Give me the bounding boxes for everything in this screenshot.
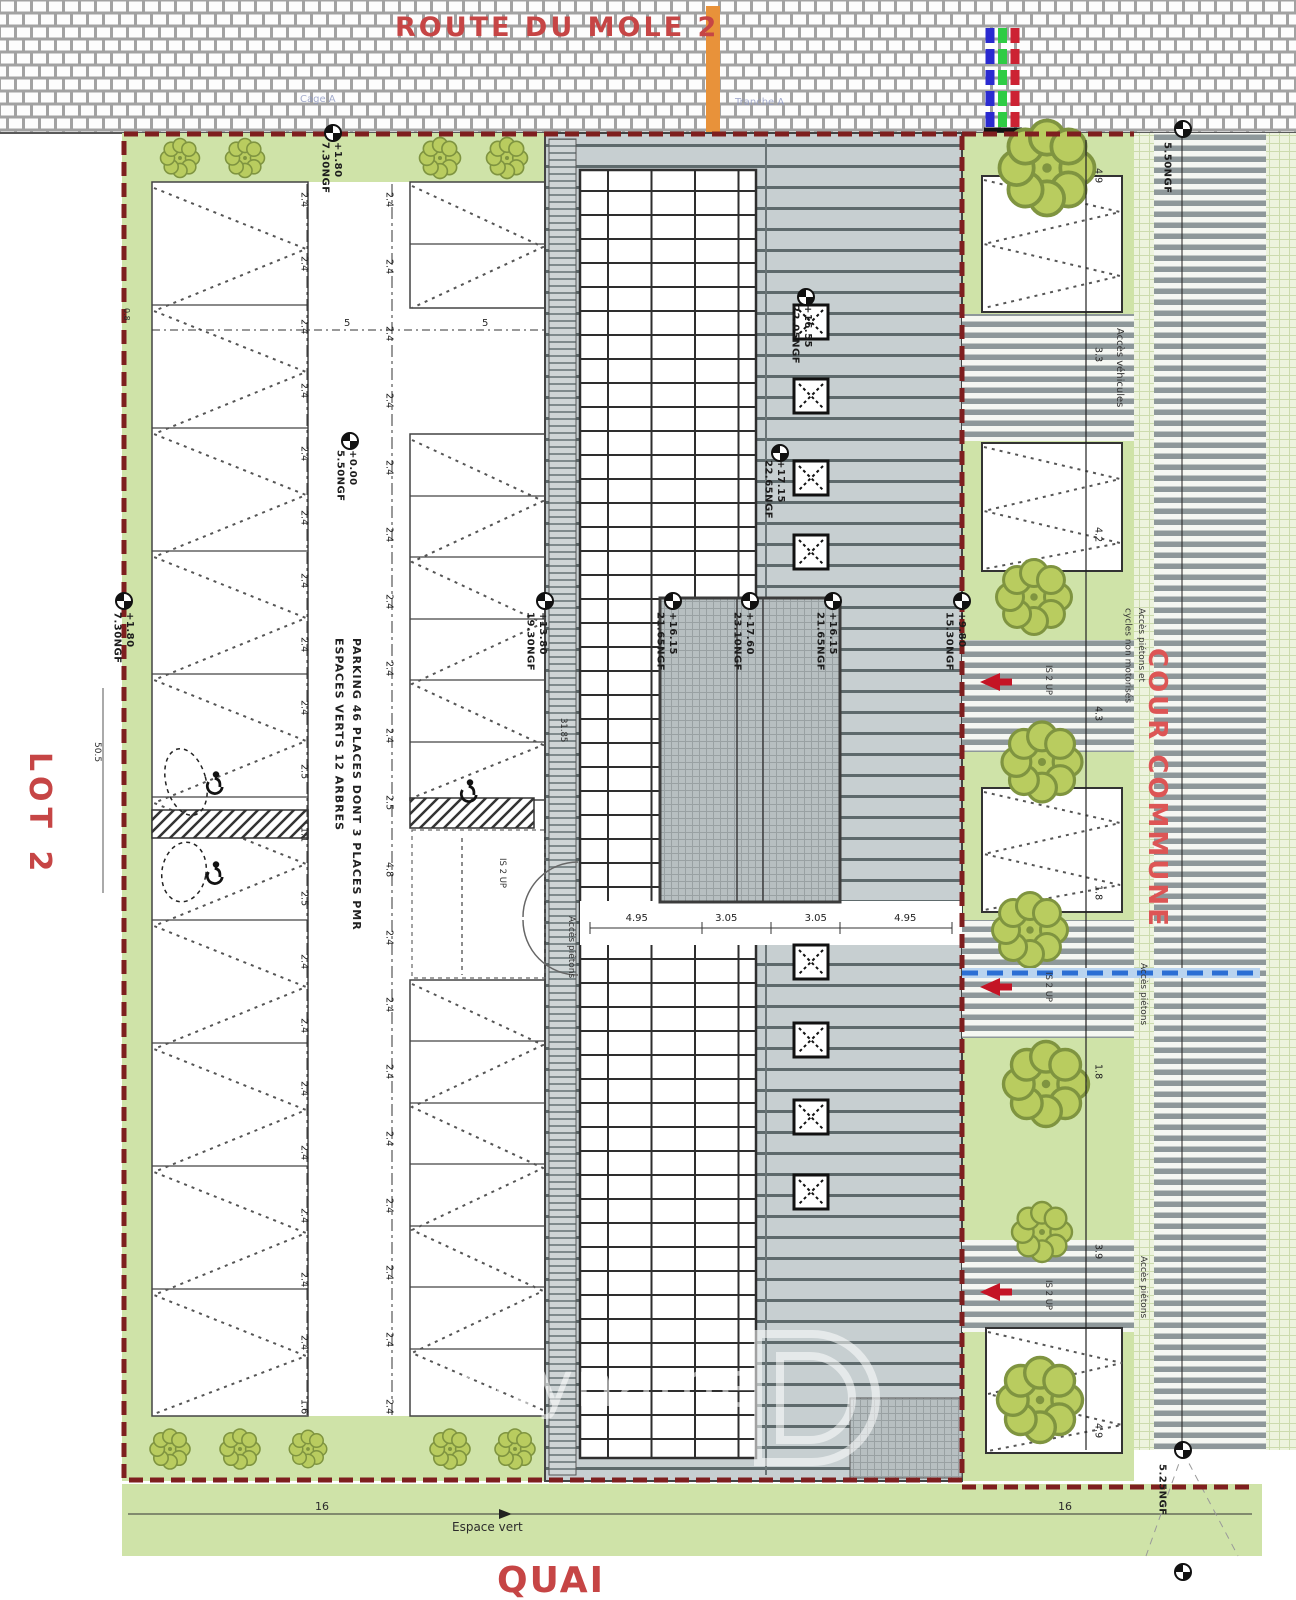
dim-building-line: 4.953.053.054.95 — [592, 913, 950, 924]
dim-value: 2.4 — [384, 1399, 395, 1414]
faint-label-right: Tranche A — [735, 97, 784, 108]
dim-value: 2.4 — [299, 573, 310, 588]
dim-value: 2.4 — [384, 527, 395, 542]
dim-value: 2.4 — [299, 1018, 310, 1033]
elevation-marker: +16.1521.65NGF — [813, 612, 838, 671]
elevation-marker: +9.8015.30NGF — [942, 612, 967, 671]
dim-value: 3.9 — [1093, 1244, 1104, 1259]
dim-value: 2.4 — [299, 256, 310, 271]
access-pedestrians-label: Accès piétons — [1138, 1256, 1148, 1318]
dim-value: 2.4 — [384, 393, 395, 408]
dim-chain-right: 2.42.42.42.42.42.42.42.42.42.54.82.42.42… — [379, 192, 399, 1414]
dim-value: 2.4 — [299, 954, 310, 969]
access-ped-cycles-label: Accès piétons et cycles non motorisés — [1120, 608, 1147, 703]
access-vehicles-label: Accès véhicules — [1114, 328, 1125, 407]
dim-value: 3.05 — [805, 913, 827, 924]
dim-value: 2.4 — [299, 1208, 310, 1223]
dim-value: 2.4 — [299, 700, 310, 715]
dim-value: 4.2 — [1093, 527, 1104, 542]
dim-value: 1.6 — [299, 1399, 310, 1414]
dim-chain-left: 2.42.42.42.42.42.42.42.42.42.51.12.52.42… — [294, 192, 314, 1414]
parking-note-line2: ESPACES VERTS 12 ARBRES — [330, 638, 348, 931]
dim-value: 1.8 — [1093, 885, 1104, 900]
elevation-marker: 5.25NGF — [1155, 1464, 1168, 1516]
dim-value: 2.4 — [384, 594, 395, 609]
dim-bottom-right: 16 — [1058, 1500, 1072, 1513]
espace-vert-label: Espace vert — [452, 1520, 523, 1534]
stair-label: IS 2 UP — [1043, 1280, 1053, 1310]
dim-value: 2.4 — [384, 930, 395, 945]
stair-label: IS 2 UP — [1043, 665, 1053, 695]
elevation-marker: +17.1522.65NGF — [761, 460, 786, 519]
dim-value: 2.4 — [384, 192, 395, 207]
elevation-marker: +17.6023.10NGF — [730, 612, 755, 671]
dim-value: 2.4 — [384, 1198, 395, 1213]
street-label-top: ROUTE DU MOLE 2 — [395, 12, 719, 43]
dim-value: 2.5 — [384, 795, 395, 810]
dim-total-left: 50.5 — [92, 742, 102, 762]
building — [545, 133, 962, 1481]
elevation-marker: +0.005.50NGF — [333, 450, 358, 502]
dim-value: 2.4 — [384, 661, 395, 676]
dim-value: 2.4 — [299, 1081, 310, 1096]
elevation-marker: +1.807.30NGF — [318, 142, 343, 194]
dim-value: 2.4 — [384, 728, 395, 743]
green-strip-bottom — [152, 1416, 546, 1481]
dim-value: 2.4 — [299, 1272, 310, 1287]
dim-value: 2.4 — [384, 1332, 395, 1347]
dim-left-small: 0.8 — [122, 308, 131, 321]
hatch-strip-right — [410, 798, 534, 828]
dim-value: 1.8 — [1093, 1064, 1104, 1079]
lot-label: LOT 2 — [22, 752, 57, 877]
dim-value: 2.4 — [299, 383, 310, 398]
dim-value: 2.4 — [299, 510, 310, 525]
watermark-text: cityname — [455, 1348, 759, 1421]
hatch-strip-left — [152, 810, 308, 838]
dim-value: 3.3 — [1093, 347, 1104, 362]
street-label-bottom: QUAI — [497, 1560, 605, 1600]
dim-aisle: 5 — [344, 318, 350, 329]
parking-note: PARKING 46 PLACES DONT 3 PLACES PMR ESPA… — [330, 638, 365, 931]
dim-value: 2.4 — [384, 1265, 395, 1280]
dim-bottom-left: 16 — [315, 1500, 329, 1513]
dim-value: 1.1 — [299, 827, 310, 842]
parking-note-line1: PARKING 46 PLACES DONT 3 PLACES PMR — [348, 638, 366, 931]
dim-value: 4.95 — [894, 913, 916, 924]
stair-label: IS 2 UP — [1043, 972, 1053, 1002]
elevation-marker: +16.5522.05NGF — [788, 305, 813, 364]
site-plan: ROUTE DU MOLE 2 Cage A Tranche A LOT 2 C… — [0, 0, 1296, 1600]
espace-vert-strip — [122, 1484, 1262, 1556]
dim-value: 3.05 — [715, 913, 737, 924]
dim-value: 2.4 — [299, 319, 310, 334]
dim-value: 4.9 — [1093, 168, 1104, 183]
dim-value: 2.4 — [384, 326, 395, 341]
dim-value: 2.5 — [299, 764, 310, 779]
elevation-marker: +13.8019.30NGF — [523, 612, 548, 671]
dim-value: 4.9 — [1093, 1423, 1104, 1438]
dim-value: 2.4 — [384, 259, 395, 274]
dim-value: 2.4 — [299, 637, 310, 652]
access-pedestrians-label: Accès piétons — [1138, 963, 1148, 1025]
faint-label-left: Cage A — [300, 94, 336, 105]
elevation-marker: +1.807.30NGF — [110, 612, 135, 664]
dim-value: 2.4 — [384, 460, 395, 475]
dim-mid-small: 31.85 — [558, 718, 568, 742]
dim-value: 2.4 — [384, 1064, 395, 1079]
dim-value: 2.4 — [299, 192, 310, 207]
stair-label: IS 2 UP — [497, 858, 507, 888]
elevation-marker: +16.1521.65NGF — [653, 612, 678, 671]
dim-value: 2.4 — [384, 1131, 395, 1146]
dim-value: 2.4 — [299, 446, 310, 461]
dim-chain-courtyard: 4.93.34.24.31.81.83.94.9 — [1089, 168, 1107, 1438]
dim-value: 2.5 — [299, 891, 310, 906]
dim-value: 4.8 — [384, 862, 395, 877]
dim-value: 2.4 — [299, 1145, 310, 1160]
dim-value: 2.4 — [299, 1335, 310, 1350]
dim-aisle: 5 — [482, 318, 488, 329]
dim-value: 4.3 — [1093, 706, 1104, 721]
dim-value: 2.4 — [384, 997, 395, 1012]
elevation-marker: 5.50NGF — [1160, 142, 1173, 194]
access-pedestrians-label: Accès piétons — [566, 916, 576, 978]
dim-value: 4.95 — [626, 913, 648, 924]
